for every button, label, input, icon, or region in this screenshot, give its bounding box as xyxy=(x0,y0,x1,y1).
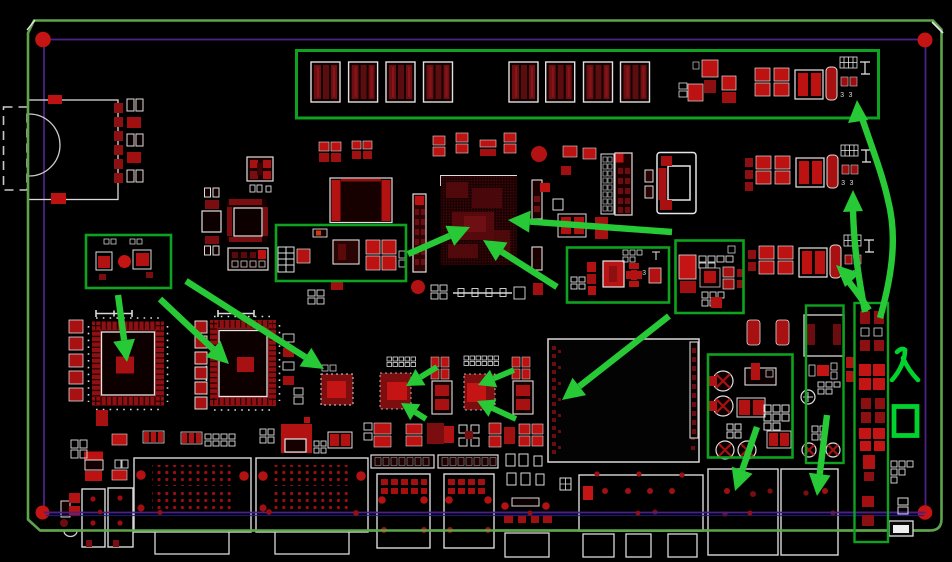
svg-text:3: 3 xyxy=(642,270,646,278)
